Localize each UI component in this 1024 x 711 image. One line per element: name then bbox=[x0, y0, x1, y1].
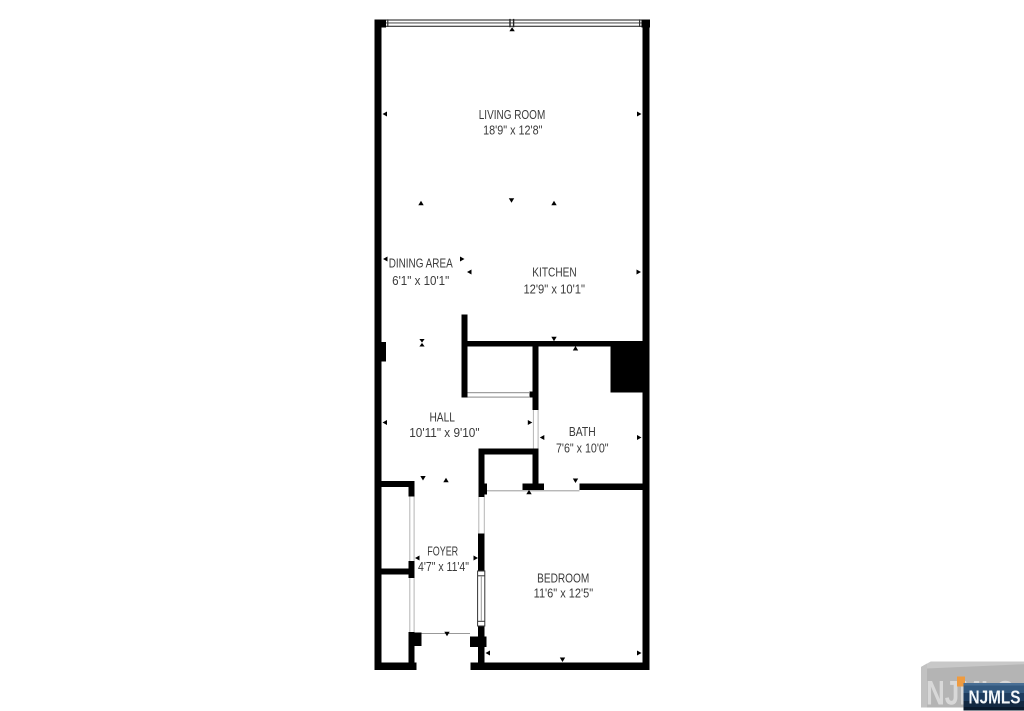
svg-text:NJMLS: NJMLS bbox=[969, 688, 1021, 708]
svg-text:12'9" x 10'1": 12'9" x 10'1" bbox=[523, 283, 585, 297]
svg-text:BATH: BATH bbox=[569, 425, 596, 439]
svg-text:HALL: HALL bbox=[429, 411, 455, 425]
svg-text:10'11" x 9'10": 10'11" x 9'10" bbox=[409, 426, 479, 440]
svg-text:FOYER: FOYER bbox=[427, 545, 458, 559]
svg-text:11'6" x 12'5": 11'6" x 12'5" bbox=[534, 587, 594, 601]
svg-text:LIVING ROOM: LIVING ROOM bbox=[479, 108, 546, 122]
svg-text:6'1" x 10'1": 6'1" x 10'1" bbox=[392, 274, 449, 288]
svg-text:4'7" x 11'4": 4'7" x 11'4" bbox=[418, 560, 469, 574]
svg-text:KITCHEN: KITCHEN bbox=[532, 266, 576, 280]
svg-text:BEDROOM: BEDROOM bbox=[537, 572, 589, 586]
svg-text:18'9" x 12'8": 18'9" x 12'8" bbox=[483, 123, 542, 137]
svg-text:DINING AREA: DINING AREA bbox=[389, 257, 454, 271]
svg-text:7'6" x 10'0": 7'6" x 10'0" bbox=[556, 442, 609, 456]
